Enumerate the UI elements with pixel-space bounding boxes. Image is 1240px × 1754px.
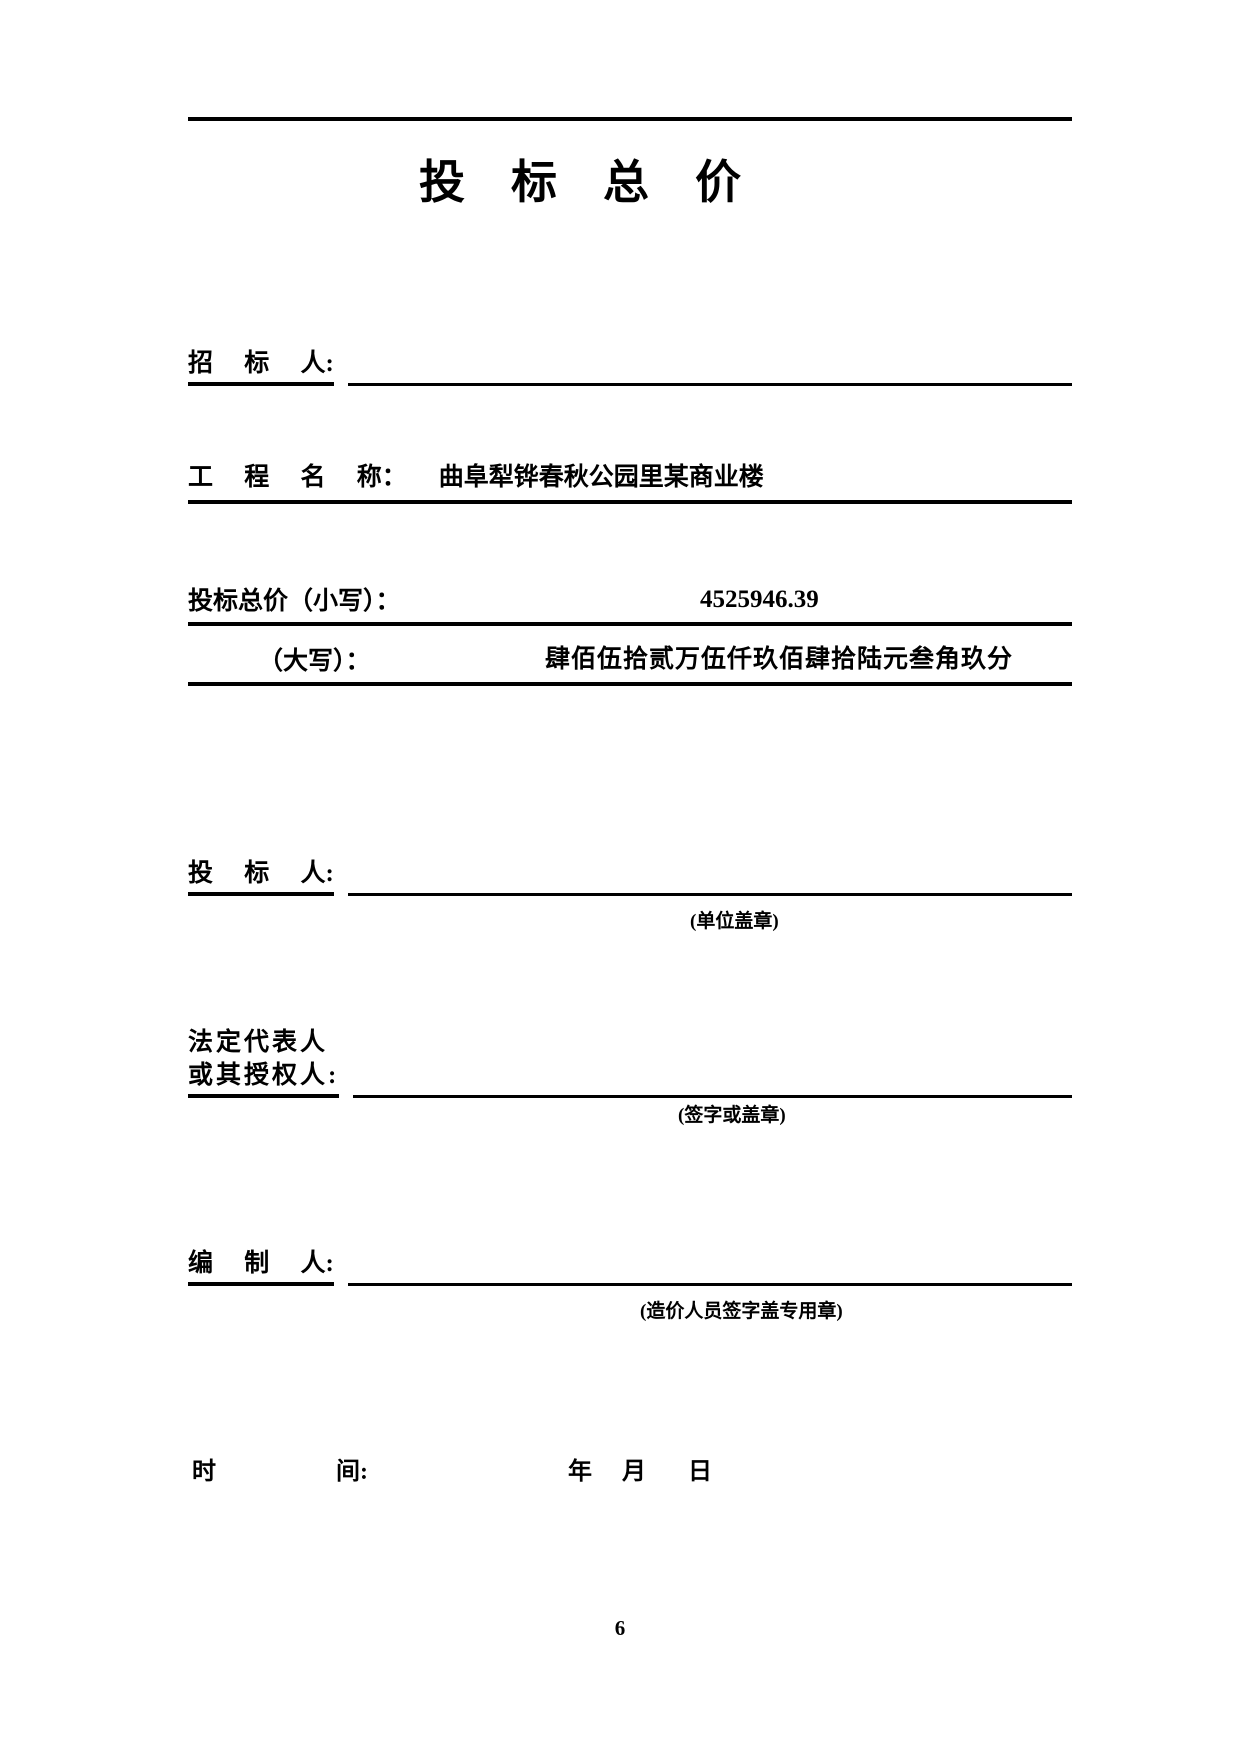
bidder-row: 投 标 人: — [188, 858, 1072, 896]
bidder-seal-note: (单位盖章) — [690, 906, 779, 933]
bid-price-words-value: 肆佰伍拾贰万伍仟玖佰肆拾陆元叁角玖分 — [545, 644, 1013, 676]
legal-representative-label-line2: 或其授权人: — [188, 1059, 339, 1092]
tenderee-blank-line — [348, 383, 1072, 386]
project-name-row: 工 程 名 称： 曲阜犁铧春秋公园里某商业楼 — [188, 462, 1072, 504]
bidder-label: 投 标 人: — [188, 858, 334, 896]
page-number: 6 — [0, 1616, 1240, 1641]
project-name-value: 曲阜犁铧春秋公园里某商业楼 — [439, 462, 764, 494]
legal-representative-sign-note: (签字或盖章) — [678, 1100, 786, 1127]
document-title: 投 标 总 价 — [150, 146, 1010, 212]
preparer-row: 编 制 人: — [188, 1248, 1072, 1286]
date-value: 年 月 日 — [568, 1456, 712, 1488]
header-rule — [188, 117, 1072, 121]
bid-price-words-label: （大写）： — [258, 646, 371, 678]
bidder-blank-line — [348, 893, 1072, 896]
preparer-label: 编 制 人: — [188, 1248, 334, 1286]
tenderee-row: 招 标 人: — [188, 348, 1072, 386]
preparer-seal-note: (造价人员签字盖专用章) — [640, 1296, 843, 1323]
legal-representative-label: 法定代表人 或其授权人: — [188, 1026, 339, 1098]
project-name-label: 工 程 名 称： — [188, 462, 407, 494]
bid-price-figures-label: 投标总价（小写）： — [188, 586, 401, 618]
date-row: 时 间: 年 月 日 — [192, 1456, 1076, 1488]
bid-price-figures-row: 投标总价（小写）： 4525946.39 — [188, 586, 1072, 626]
preparer-blank-line — [348, 1283, 1072, 1286]
bid-price-figures-value: 4525946.39 — [700, 584, 819, 616]
date-label: 时 间: — [192, 1456, 368, 1488]
legal-representative-label-line1: 法定代表人 — [188, 1026, 339, 1059]
tenderee-label: 招 标 人: — [188, 348, 334, 386]
bid-price-words-row: （大写）： 肆佰伍拾贰万伍仟玖佰肆拾陆元叁角玖分 — [188, 646, 1072, 686]
legal-representative-blank-line — [353, 1095, 1072, 1098]
document-page: 投 标 总 价 招 标 人: 工 程 名 称： 曲阜犁铧春秋公园里某商业楼 投标… — [0, 0, 1240, 1754]
legal-representative-row: 法定代表人 或其授权人: — [188, 1026, 1072, 1098]
